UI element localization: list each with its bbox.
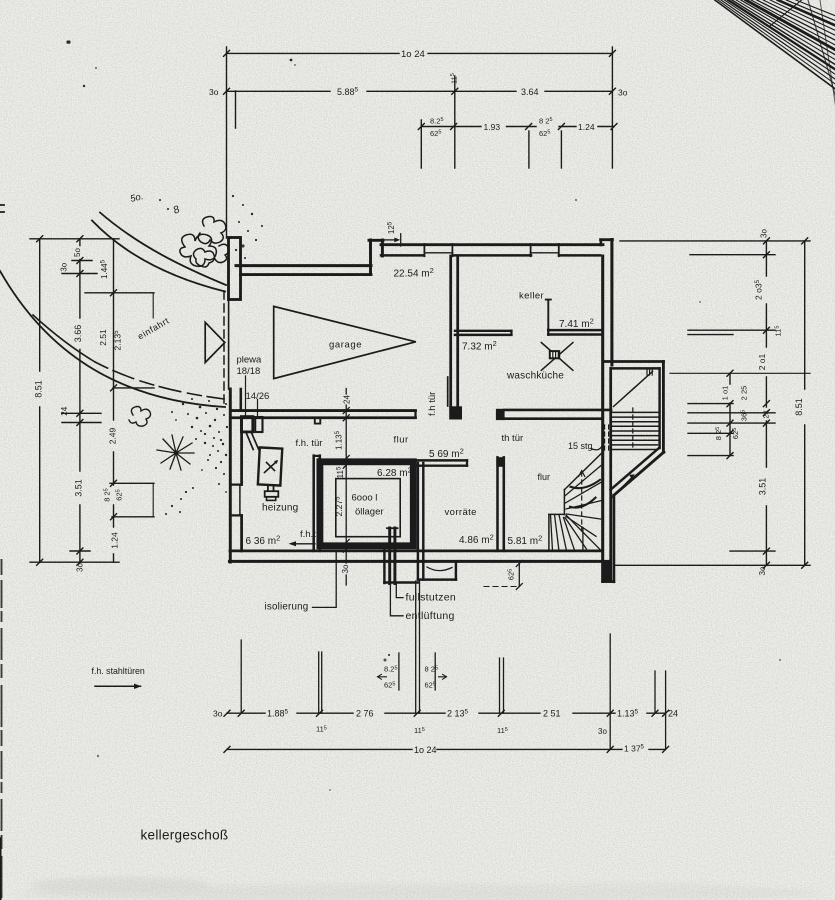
svg-text:isolierung: isolierung <box>265 602 309 613</box>
svg-text:fullstutzen: fullstutzen <box>406 592 457 604</box>
svg-text:vorräte: vorräte <box>445 507 477 518</box>
svg-text:8.51: 8.51 <box>34 380 44 398</box>
svg-text:1.24: 1.24 <box>578 122 595 132</box>
svg-text:2 o1: 2 o1 <box>757 353 767 370</box>
svg-text:7.41 m2: 7.41 m2 <box>559 317 594 331</box>
svg-text:waschküche: waschküche <box>506 371 564 382</box>
svg-text:3.51: 3.51 <box>758 478 768 496</box>
svg-text:8.51: 8.51 <box>794 398 804 416</box>
svg-text:öllager: öllager <box>355 507 384 518</box>
svg-text:th tür: th tür <box>502 433 524 444</box>
svg-text:3o: 3o <box>76 563 85 572</box>
svg-text:4.86 m2: 4.86 m2 <box>459 533 494 547</box>
svg-text:6.28 m2: 6.28 m2 <box>377 466 412 480</box>
svg-text:3o: 3o <box>759 229 768 238</box>
svg-text:1.24: 1.24 <box>110 532 120 549</box>
svg-text:5o: 5o <box>73 248 82 257</box>
svg-text:entlüftung: entlüftung <box>406 610 455 622</box>
svg-text:f.h. stahltüren: f.h. stahltüren <box>92 666 145 676</box>
svg-text:7.32 m2: 7.32 m2 <box>462 339 497 353</box>
svg-text:f.h tür: f.h tür <box>427 392 438 416</box>
svg-text:3o: 3o <box>758 566 767 575</box>
svg-text:14/26: 14/26 <box>246 391 270 402</box>
svg-text:24: 24 <box>668 709 678 719</box>
svg-text:2 51: 2 51 <box>543 709 561 719</box>
svg-text:keller: keller <box>519 291 544 302</box>
svg-text:3o: 3o <box>341 564 350 573</box>
svg-text:3.64: 3.64 <box>521 87 539 97</box>
svg-text:heizung: heizung <box>262 503 298 514</box>
svg-text:2.51: 2.51 <box>98 329 108 346</box>
svg-text:flur: flur <box>538 472 551 482</box>
svg-text:3o: 3o <box>598 727 607 736</box>
svg-text:kellergeschoß: kellergeschoß <box>141 828 229 843</box>
svg-text:18/18: 18/18 <box>237 366 261 377</box>
svg-text:1o 24: 1o 24 <box>414 745 437 755</box>
svg-text:3o: 3o <box>213 709 223 719</box>
svg-text:garage: garage <box>329 340 362 351</box>
svg-text:3.66: 3.66 <box>73 325 83 343</box>
svg-text:6 36 m2: 6 36 m2 <box>246 534 281 548</box>
svg-text:24: 24 <box>60 406 69 415</box>
svg-text:22.54 m2: 22.54 m2 <box>394 266 434 280</box>
svg-text:3o: 3o <box>209 87 219 97</box>
svg-text:6ooo l: 6ooo l <box>352 493 378 504</box>
svg-text:f.h.t.: f.h.t. <box>300 529 318 540</box>
svg-text:plewa: plewa <box>237 355 263 366</box>
svg-text:1 o1: 1 o1 <box>721 386 730 401</box>
svg-text:flur: flur <box>394 435 409 446</box>
svg-text:15 stg: 15 stg <box>568 441 593 451</box>
svg-text:f.h. tür: f.h. tür <box>296 438 323 449</box>
svg-text:3o: 3o <box>59 262 68 271</box>
svg-text:1.93: 1.93 <box>484 122 501 132</box>
svg-text:2 25: 2 25 <box>740 386 749 401</box>
svg-text:24: 24 <box>343 395 352 404</box>
svg-text:3.51: 3.51 <box>74 479 84 497</box>
svg-text:24: 24 <box>762 410 771 418</box>
svg-text:5 69 m2: 5 69 m2 <box>429 447 464 461</box>
svg-text:1o 24: 1o 24 <box>401 49 425 60</box>
svg-text:3o: 3o <box>618 88 628 98</box>
svg-text:2 76: 2 76 <box>356 709 374 719</box>
svg-text:5.81 m2: 5.81 m2 <box>508 534 543 548</box>
svg-text:2.49: 2.49 <box>108 427 118 444</box>
